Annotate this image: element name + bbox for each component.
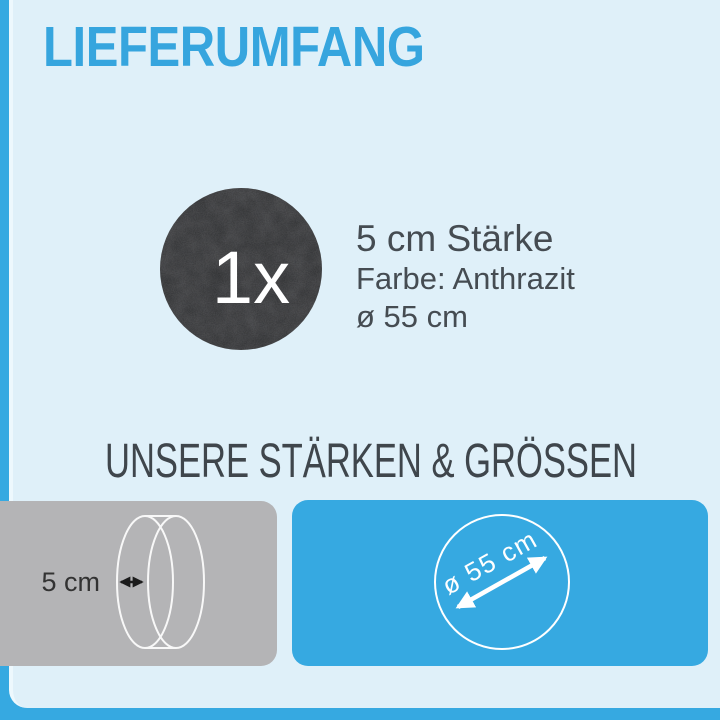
cylinder-side-view-graphic: 5 cm xyxy=(0,501,277,666)
diameter-diagram-panel: ø 55 cm xyxy=(292,500,708,666)
circle-top-view-graphic: ø 55 cm xyxy=(292,500,708,666)
quantity-label: 1x xyxy=(170,197,332,359)
product-infographic: LIEFERUMFANG 1x 5 cm Stärke Farbe: An xyxy=(0,0,720,720)
thickness-diagram-panel: 5 cm xyxy=(0,501,277,666)
section-heading: UNSERE STÄRKEN & GRÖSSEN xyxy=(105,436,637,489)
diameter-text: ø 55 cm xyxy=(356,298,575,336)
felt-pad-image: 1x xyxy=(160,188,322,350)
thickness-dimension-label: 5 cm xyxy=(41,567,100,597)
product-specs: 5 cm Stärke Farbe: Anthrazit ø 55 cm xyxy=(356,218,575,336)
page-title: LIEFERUMFANG xyxy=(43,16,425,79)
color-text: Farbe: Anthrazit xyxy=(356,260,575,298)
thickness-text: 5 cm Stärke xyxy=(356,218,575,260)
